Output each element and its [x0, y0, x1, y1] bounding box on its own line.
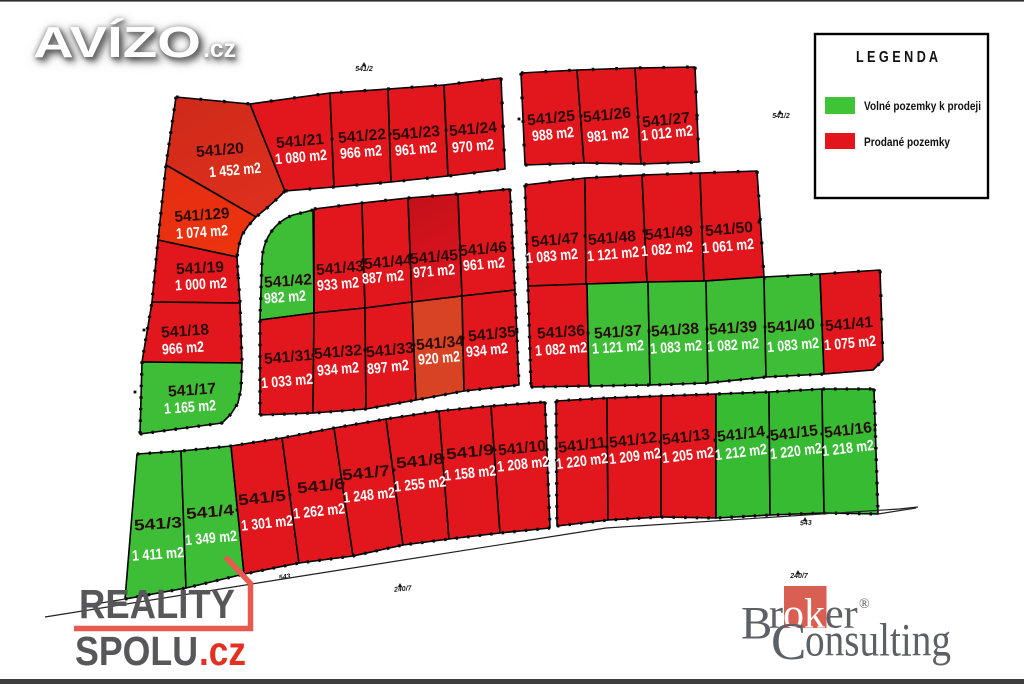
svg-text:onsulting: onsulting: [805, 615, 951, 667]
svg-text:1 165 m2: 1 165 m2: [164, 397, 217, 418]
svg-text:1 074 m2: 1 074 m2: [176, 222, 229, 243]
svg-text:Volné pozemky k prodeji: Volné pozemky k prodeji: [864, 99, 981, 113]
svg-text:966 m2: 966 m2: [161, 339, 204, 359]
svg-text:1 411 m2: 1 411 m2: [132, 544, 185, 565]
svg-text:.cz: .cz: [203, 35, 236, 63]
svg-text:L E G E N D A: L E G E N D A: [856, 49, 938, 66]
svg-text:C: C: [771, 613, 806, 671]
svg-text:®: ®: [859, 597, 870, 612]
svg-text:1 083 m2: 1 083 m2: [650, 337, 703, 358]
svg-text:541/3: 541/3: [134, 514, 184, 534]
svg-text:AVÍZO: AVÍZO: [33, 17, 201, 67]
svg-text:541/2: 541/2: [355, 66, 373, 73]
svg-text:.cz: .cz: [199, 628, 246, 674]
svg-text:REALITY: REALITY: [79, 581, 235, 627]
svg-text:Prodané pozemky: Prodané pozemky: [864, 135, 950, 149]
svg-text:B: B: [741, 598, 772, 650]
svg-text:982 m2: 982 m2: [263, 288, 306, 308]
svg-text:1 082 m2: 1 082 m2: [535, 339, 588, 360]
svg-text:1 000 m2: 1 000 m2: [175, 275, 228, 295]
svg-text:SPOLU: SPOLU: [75, 628, 198, 674]
svg-text:1 121 m2: 1 121 m2: [592, 337, 645, 358]
svg-text:1 082 m2: 1 082 m2: [707, 335, 760, 356]
